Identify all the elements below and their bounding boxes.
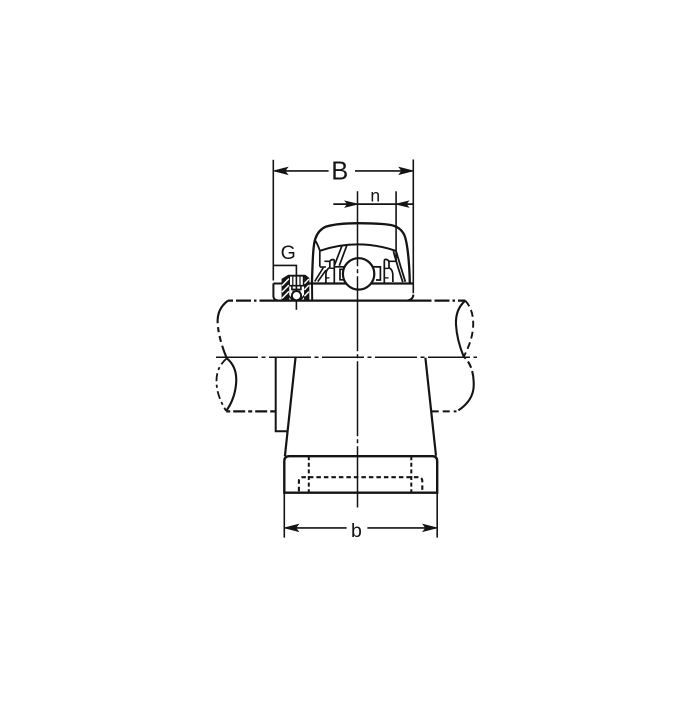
svg-text:n: n	[370, 185, 380, 205]
svg-text:B: B	[331, 158, 348, 186]
svg-text:b: b	[351, 520, 362, 542]
svg-text:G: G	[281, 242, 296, 264]
